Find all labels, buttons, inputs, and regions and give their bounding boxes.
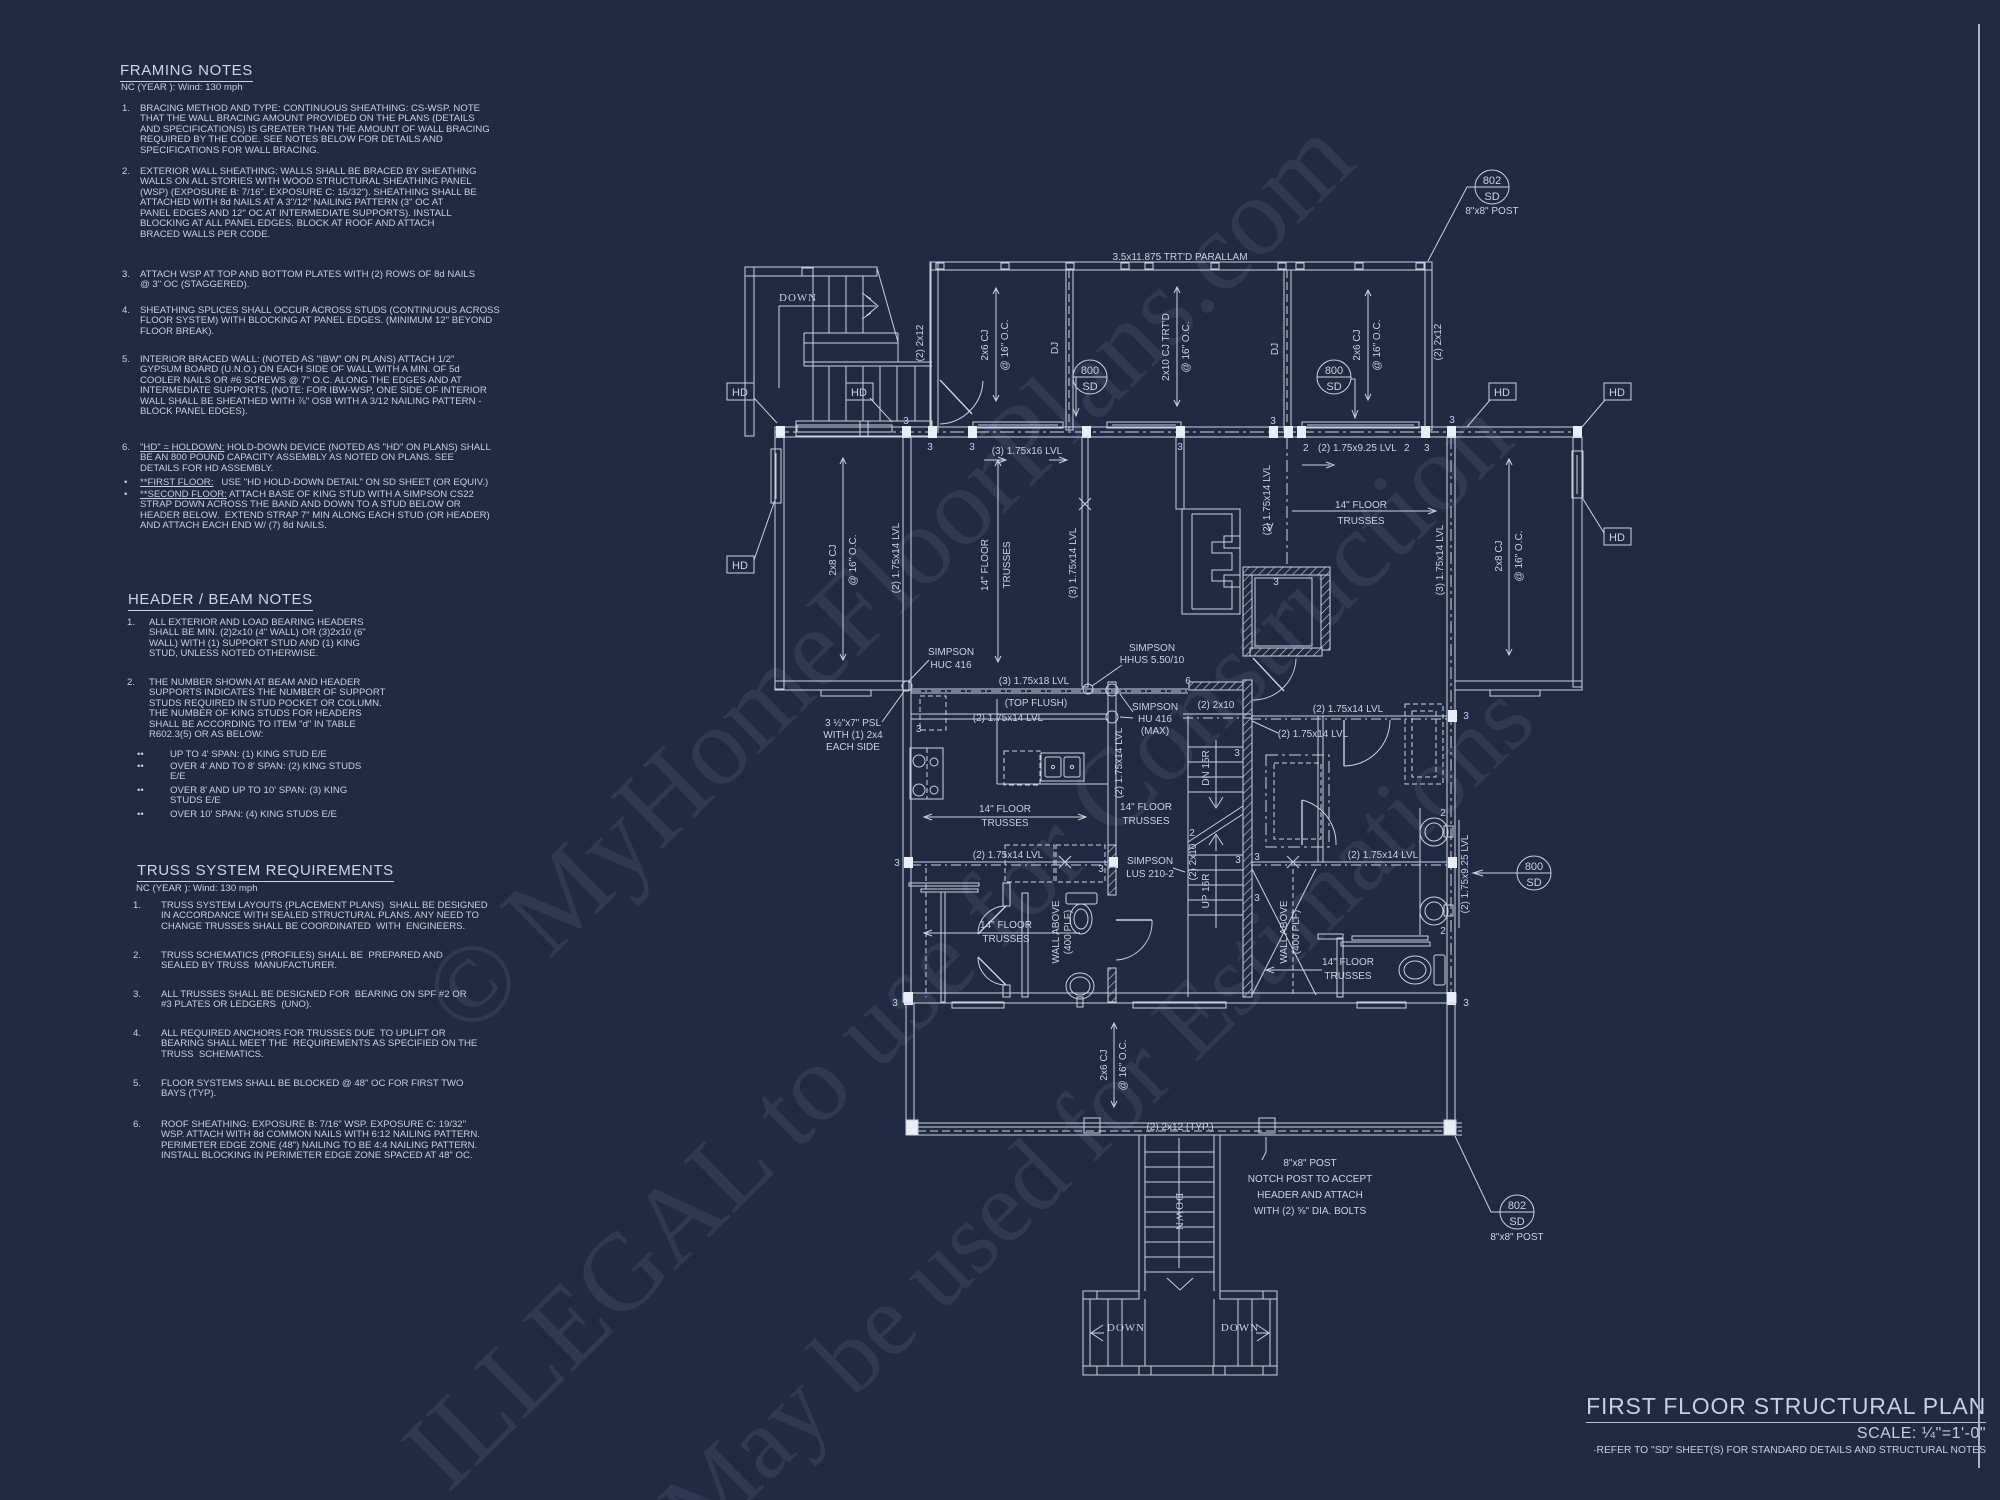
- svg-text:3: 3: [1254, 893, 1260, 904]
- svg-text:TRUSSES: TRUSSES: [981, 818, 1029, 829]
- svg-text:(400 PLF): (400 PLF): [1291, 910, 1302, 954]
- svg-text:EACH SIDE: EACH SIDE: [826, 742, 880, 753]
- svg-text:DOWN: DOWN: [1173, 1193, 1185, 1231]
- svg-text:HD: HD: [1609, 532, 1625, 544]
- svg-text:SD: SD: [1509, 1216, 1524, 1228]
- svg-text:UP 16R: UP 16R: [1201, 874, 1212, 909]
- svg-text:2: 2: [1440, 926, 1446, 937]
- svg-text:3: 3: [1234, 748, 1240, 759]
- svg-text:SD: SD: [1326, 381, 1341, 393]
- svg-text:2x6 CJ: 2x6 CJ: [1352, 329, 1363, 360]
- svg-text:DN 15R: DN 15R: [1201, 750, 1212, 786]
- svg-text:2: 2: [1440, 808, 1446, 819]
- svg-text:@ 16" O.C.: @ 16" O.C.: [1181, 322, 1192, 373]
- svg-text:8"x8" POST: 8"x8" POST: [1490, 1232, 1543, 1243]
- svg-text:DJ: DJ: [1050, 342, 1061, 354]
- svg-text:(2) 1.75x14 LVL: (2) 1.75x14 LVL: [1114, 727, 1125, 798]
- svg-text:3: 3: [1177, 442, 1183, 453]
- svg-text:SIMPSON: SIMPSON: [1127, 856, 1173, 867]
- svg-text:3: 3: [1463, 711, 1469, 722]
- svg-text:WALL ABOVE: WALL ABOVE: [1279, 900, 1290, 964]
- svg-text:2: 2: [1404, 443, 1410, 454]
- svg-text:@ 16" O.C.: @ 16" O.C.: [848, 535, 859, 586]
- svg-text:3: 3: [1424, 443, 1430, 454]
- svg-text:TRUSSES: TRUSSES: [1337, 516, 1385, 527]
- svg-text:(2) 2x10: (2) 2x10: [1198, 700, 1235, 711]
- svg-text:3: 3: [903, 416, 909, 427]
- svg-text:14" FLOOR: 14" FLOOR: [980, 920, 1032, 931]
- svg-text:(2) 2x12: (2) 2x12: [1433, 323, 1444, 360]
- svg-text:@ 16" O.C.: @ 16" O.C.: [1118, 1040, 1129, 1091]
- svg-text:DOWN: DOWN: [1221, 1322, 1259, 1334]
- svg-text:(2) 1.75x14 LVL: (2) 1.75x14 LVL: [1348, 850, 1419, 861]
- svg-text:WITH (1) 2x4: WITH (1) 2x4: [823, 730, 883, 741]
- svg-text:DJ: DJ: [1270, 343, 1281, 355]
- svg-text:@ 16" O.C.: @ 16" O.C.: [1372, 320, 1383, 371]
- svg-text:3: 3: [927, 442, 933, 453]
- svg-text:(2) 1.75x14 LVL: (2) 1.75x14 LVL: [1278, 729, 1349, 740]
- svg-text:LUS 210-2: LUS 210-2: [1126, 869, 1174, 880]
- svg-text:800: 800: [1525, 861, 1543, 873]
- svg-text:HUC 416: HUC 416: [930, 660, 972, 671]
- svg-text:NOTCH POST TO ACCEPT: NOTCH POST TO ACCEPT: [1248, 1174, 1372, 1185]
- svg-text:HU 416: HU 416: [1138, 714, 1172, 725]
- svg-text:2x6 CJ: 2x6 CJ: [980, 329, 991, 360]
- svg-text:WITH (2) ⅝" DIA. BOLTS: WITH (2) ⅝" DIA. BOLTS: [1254, 1206, 1367, 1217]
- svg-text:HD: HD: [1609, 387, 1625, 399]
- svg-text:(400 PLF): (400 PLF): [1063, 910, 1074, 954]
- svg-text:(2) 1.75x9.25 LVL: (2) 1.75x9.25 LVL: [1318, 443, 1397, 454]
- svg-text:2x10 CJ TRT'D: 2x10 CJ TRT'D: [1161, 313, 1172, 381]
- svg-text:2x6 CJ: 2x6 CJ: [1099, 1049, 1110, 1080]
- svg-text:2: 2: [1303, 443, 1309, 454]
- svg-text:3: 3: [1270, 416, 1276, 427]
- svg-text:(3) 1.75x14 LVL: (3) 1.75x14 LVL: [1068, 527, 1079, 598]
- svg-text:(MAX): (MAX): [1141, 726, 1169, 737]
- svg-text:(3) 1.75x14 LVL: (3) 1.75x14 LVL: [1435, 524, 1446, 595]
- svg-text:TRUSSES: TRUSSES: [1324, 971, 1372, 982]
- svg-text:(3) 1.75x18 LVL: (3) 1.75x18 LVL: [999, 676, 1070, 687]
- svg-text:@ 16" O.C.: @ 16" O.C.: [1000, 320, 1011, 371]
- svg-text:3: 3: [969, 442, 975, 453]
- svg-text:8"x8" POST: 8"x8" POST: [1283, 1158, 1336, 1169]
- svg-text:14" FLOOR: 14" FLOOR: [1322, 957, 1374, 968]
- svg-text:(2) 1.75x14 LVL: (2) 1.75x14 LVL: [1313, 704, 1384, 715]
- svg-text:HD: HD: [732, 387, 748, 399]
- svg-text:800: 800: [1081, 365, 1099, 377]
- svg-text:HD: HD: [851, 387, 867, 399]
- svg-text:WALL ABOVE: WALL ABOVE: [1051, 900, 1062, 964]
- svg-text:(TOP FLUSH): (TOP FLUSH): [1005, 698, 1067, 709]
- svg-text:2x8 CJ: 2x8 CJ: [828, 544, 839, 575]
- svg-text:14" FLOOR: 14" FLOOR: [1120, 802, 1172, 813]
- svg-text:(2) 1.75x14 LVL: (2) 1.75x14 LVL: [891, 522, 902, 593]
- svg-text:DOWN: DOWN: [779, 292, 817, 304]
- svg-text:3: 3: [1098, 864, 1104, 875]
- svg-text:800: 800: [1325, 365, 1343, 377]
- svg-text:14" FLOOR: 14" FLOOR: [1335, 500, 1387, 511]
- svg-text:SD: SD: [1484, 191, 1499, 203]
- svg-text:2: 2: [1189, 828, 1195, 839]
- svg-text:(3) 1.75x16 LVL: (3) 1.75x16 LVL: [992, 446, 1063, 457]
- svg-text:8"x8" POST: 8"x8" POST: [1465, 206, 1518, 217]
- svg-text:HD: HD: [1494, 387, 1510, 399]
- svg-text:3: 3: [1273, 577, 1279, 588]
- svg-text:SIMPSON: SIMPSON: [928, 647, 974, 658]
- svg-text:(2) 2x10: (2) 2x10: [1188, 843, 1199, 880]
- svg-text:14" FLOOR: 14" FLOOR: [979, 804, 1031, 815]
- svg-text:3: 3: [1235, 855, 1241, 866]
- svg-text:SIMPSON: SIMPSON: [1132, 702, 1178, 713]
- svg-text:SD: SD: [1526, 877, 1541, 889]
- svg-text:TRUSSES: TRUSSES: [1122, 816, 1170, 827]
- svg-text:TRUSSES: TRUSSES: [1002, 541, 1013, 589]
- svg-text:TRUSSES: TRUSSES: [982, 934, 1030, 945]
- svg-text:3: 3: [894, 858, 900, 869]
- svg-text:3.5x11.875 TRT'D PARALLAM: 3.5x11.875 TRT'D PARALLAM: [1112, 252, 1247, 263]
- svg-text:2x8 CJ: 2x8 CJ: [1494, 540, 1505, 571]
- svg-text:@ 16" O.C.: @ 16" O.C.: [1514, 531, 1525, 582]
- svg-text:802: 802: [1483, 175, 1501, 187]
- svg-text:HEADER AND ATTACH: HEADER AND ATTACH: [1257, 1190, 1363, 1201]
- svg-text:3: 3: [1254, 852, 1260, 863]
- svg-text:(2) 2x12: (2) 2x12: [915, 324, 926, 361]
- svg-text:3: 3: [1449, 415, 1455, 426]
- svg-text:SIMPSON: SIMPSON: [1129, 643, 1175, 654]
- svg-text:3 ½"x7" PSL: 3 ½"x7" PSL: [825, 718, 881, 729]
- svg-text:802: 802: [1508, 1200, 1526, 1212]
- svg-text:14" FLOOR: 14" FLOOR: [980, 539, 991, 591]
- svg-text:HHUS 5.50/10: HHUS 5.50/10: [1120, 655, 1185, 666]
- svg-text:DOWN: DOWN: [1107, 1322, 1145, 1334]
- svg-text:HD: HD: [732, 560, 748, 572]
- svg-text:(2) 1.75x14 LVL: (2) 1.75x14 LVL: [973, 850, 1044, 861]
- svg-text:3: 3: [1463, 998, 1469, 1009]
- svg-text:SD: SD: [1082, 381, 1097, 393]
- svg-text:(2) 2x12 (TYP.): (2) 2x12 (TYP.): [1146, 1122, 1213, 1133]
- svg-text:3: 3: [892, 998, 898, 1009]
- svg-text:(2) 1.75x9.25 LVL: (2) 1.75x9.25 LVL: [1460, 834, 1471, 913]
